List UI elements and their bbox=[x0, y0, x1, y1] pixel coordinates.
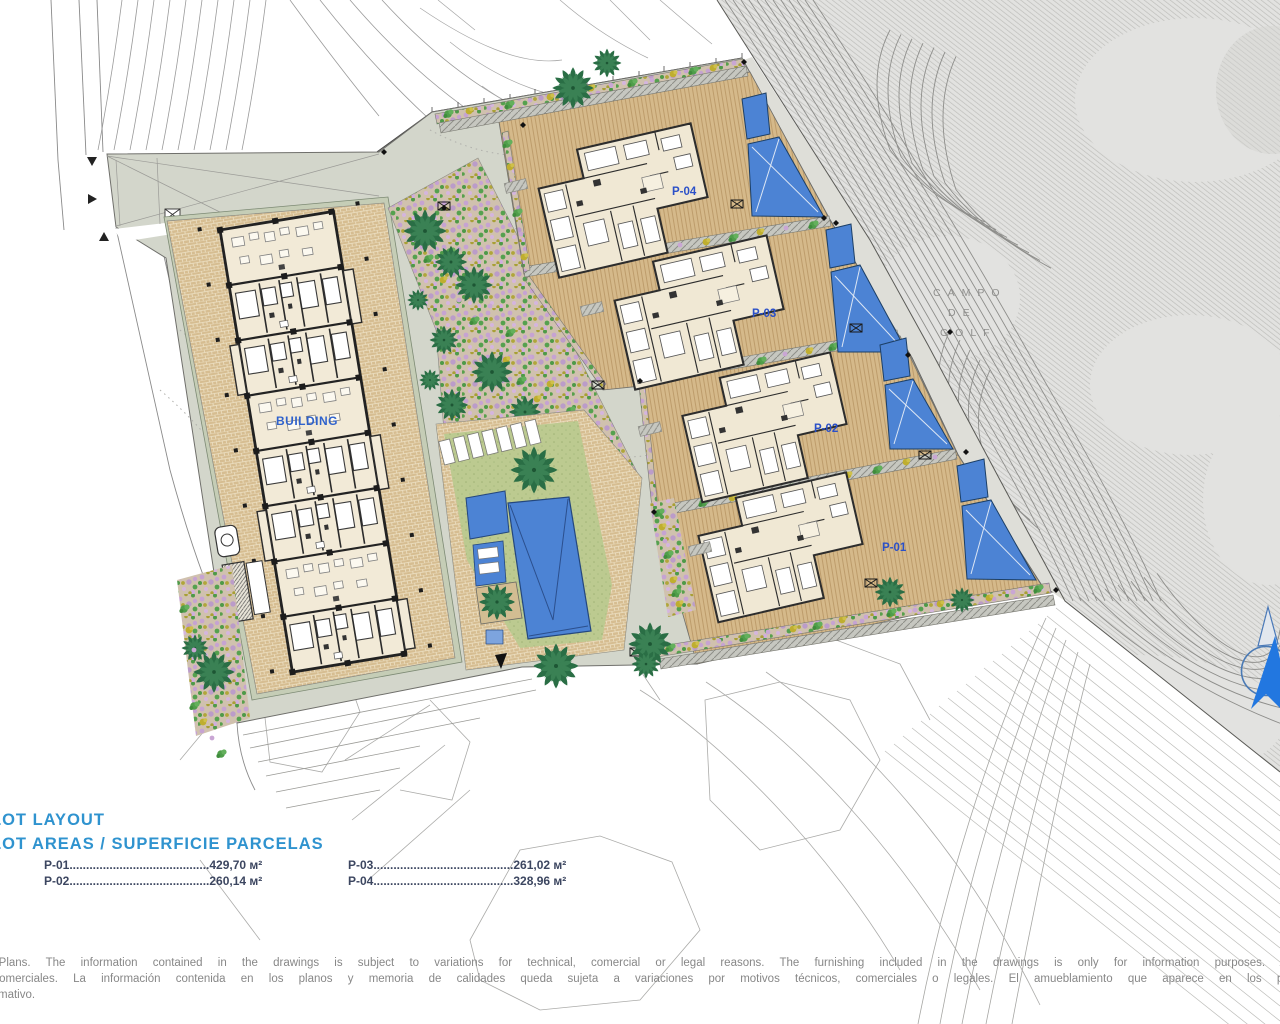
svg-text:P-02: P-02 bbox=[814, 423, 838, 435]
svg-text:omercial Plans. The informatio: omercial Plans. The information containe… bbox=[0, 957, 1280, 969]
svg-text:P-02..........................: P-02....................................… bbox=[44, 874, 262, 888]
svg-text:P-03..........................: P-03....................................… bbox=[348, 858, 566, 872]
svg-text:PLOT AREAS / SUPERFICIE PARCEL: PLOT AREAS / SUPERFICIE PARCELAS bbox=[0, 835, 324, 853]
svg-text:PLOT LAYOUT: PLOT LAYOUT bbox=[0, 811, 105, 829]
svg-text:CAMPO: CAMPO bbox=[933, 287, 1007, 299]
svg-text:P-04: P-04 bbox=[672, 186, 697, 198]
svg-text:P-03: P-03 bbox=[752, 308, 776, 320]
svg-text:P-04..........................: P-04....................................… bbox=[348, 874, 566, 888]
svg-text:DE: DE bbox=[948, 307, 977, 319]
svg-text:mativo.: mativo. bbox=[0, 989, 35, 1001]
svg-text:P-01..........................: P-01....................................… bbox=[44, 858, 262, 872]
svg-text:P-01: P-01 bbox=[882, 542, 907, 554]
svg-text:BUILDING: BUILDING bbox=[276, 414, 338, 428]
svg-text:es comerciales. La información: es comerciales. La información contenida… bbox=[0, 973, 1280, 985]
